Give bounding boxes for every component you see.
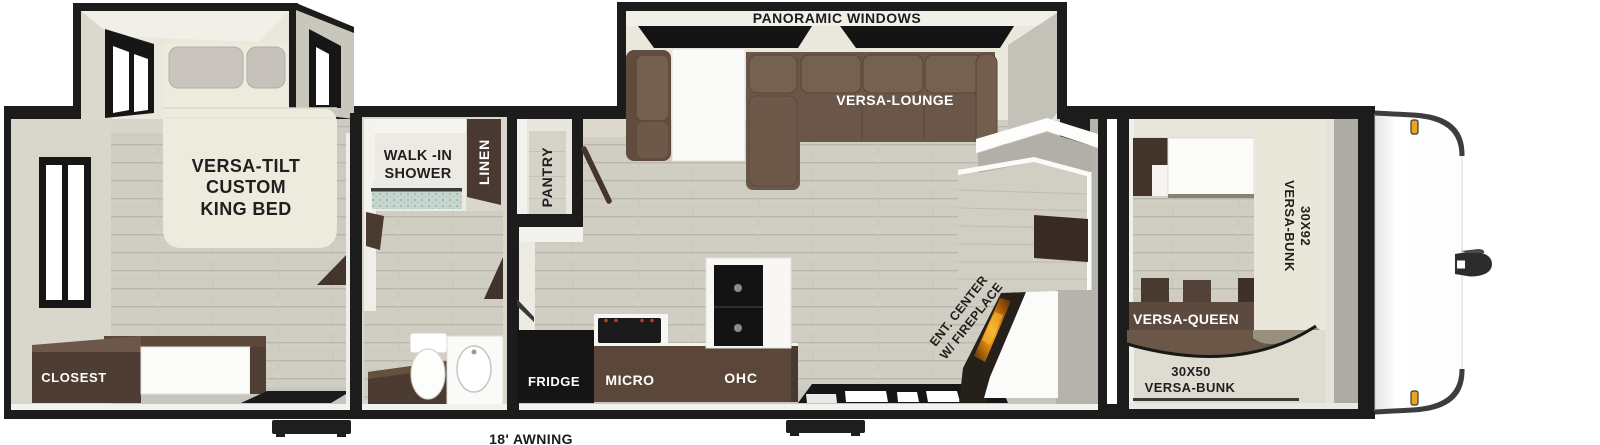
svg-text:VERSA-BUNK: VERSA-BUNK — [1282, 180, 1297, 272]
svg-text:FRIDGE: FRIDGE — [528, 374, 580, 389]
svg-text:30X92: 30X92 — [1298, 206, 1313, 246]
svg-text:PANTRY: PANTRY — [539, 147, 555, 208]
svg-text:18' AWNING: 18' AWNING — [489, 431, 573, 445]
svg-text:SHOWER: SHOWER — [384, 166, 451, 182]
svg-text:OHC: OHC — [724, 370, 758, 386]
svg-text:CUSTOM: CUSTOM — [206, 177, 286, 197]
svg-text:WALK -IN: WALK -IN — [384, 148, 452, 164]
svg-text:MICRO: MICRO — [605, 372, 654, 388]
svg-text:CLOSEST: CLOSEST — [41, 370, 107, 385]
svg-text:VERSA-LOUNGE: VERSA-LOUNGE — [836, 92, 954, 108]
svg-text:KING BED: KING BED — [200, 199, 291, 219]
svg-text:VERSA-BUNK: VERSA-BUNK — [1145, 380, 1236, 395]
svg-text:VERSA-TILT: VERSA-TILT — [192, 156, 301, 176]
svg-text:VERSA-QUEEN: VERSA-QUEEN — [1133, 311, 1239, 327]
svg-text:LINEN: LINEN — [476, 139, 492, 185]
svg-text:30X50: 30X50 — [1171, 364, 1211, 379]
svg-text:PANORAMIC WINDOWS: PANORAMIC WINDOWS — [753, 10, 921, 26]
